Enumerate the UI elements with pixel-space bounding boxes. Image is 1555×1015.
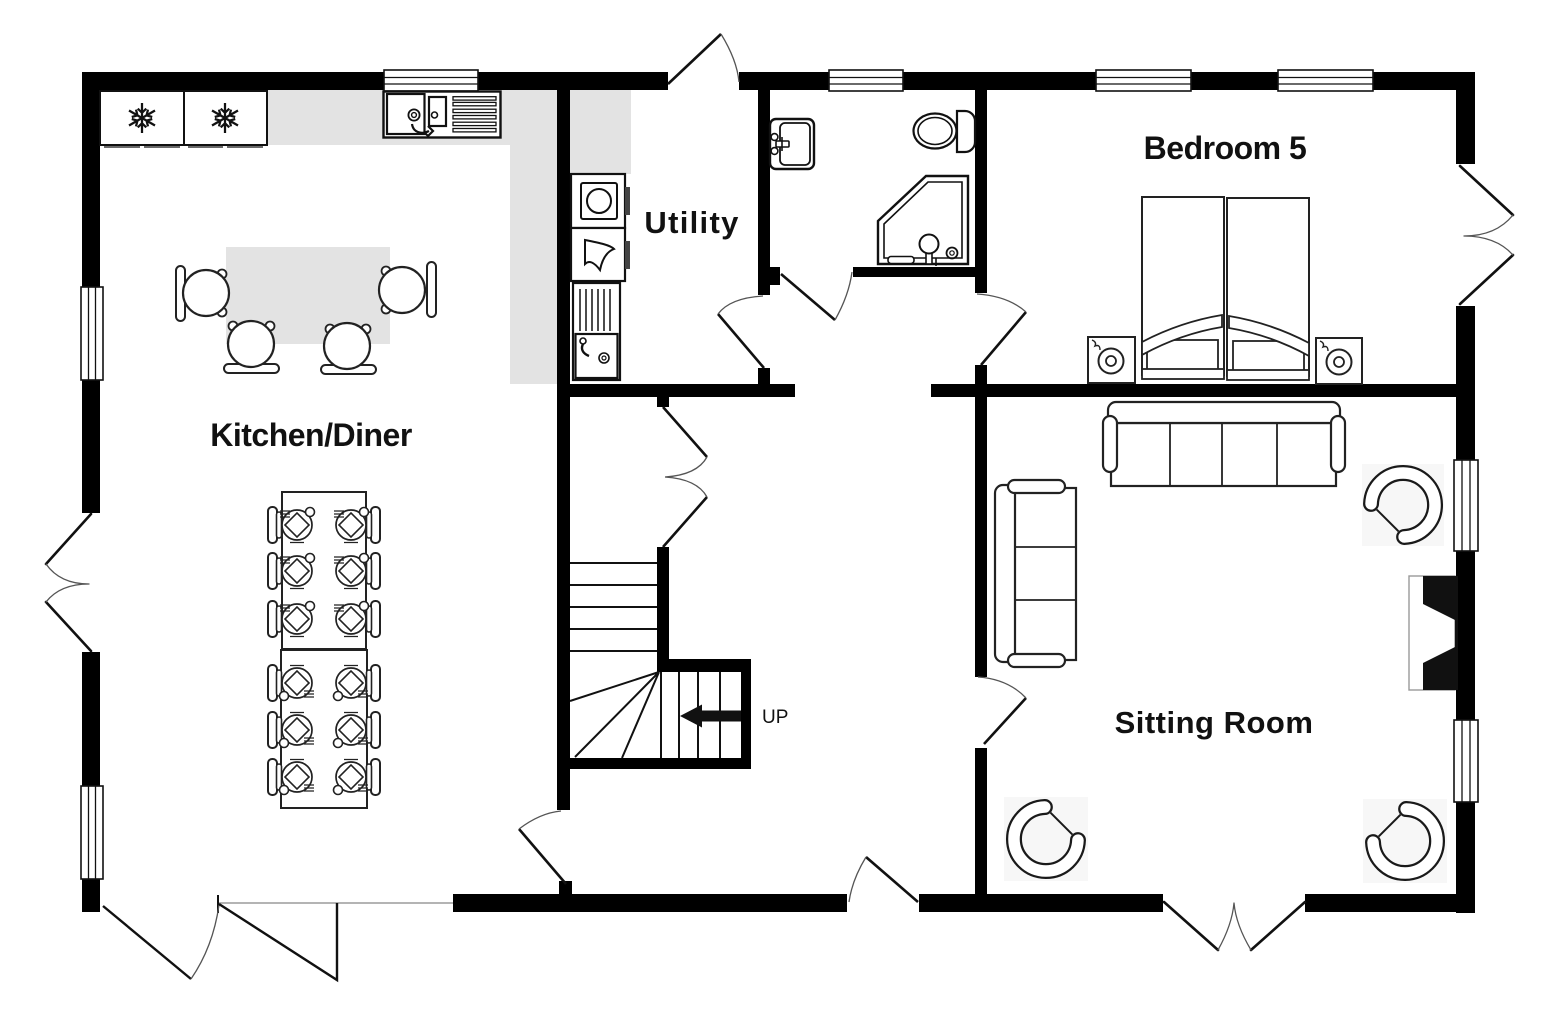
svg-text:Sitting Room: Sitting Room [1115, 705, 1314, 740]
svg-text:Kitchen/Diner: Kitchen/Diner [210, 417, 412, 453]
svg-text:UP: UP [762, 707, 788, 728]
svg-text:Bedroom 5: Bedroom 5 [1144, 130, 1307, 166]
svg-text:Utility: Utility [644, 205, 739, 240]
